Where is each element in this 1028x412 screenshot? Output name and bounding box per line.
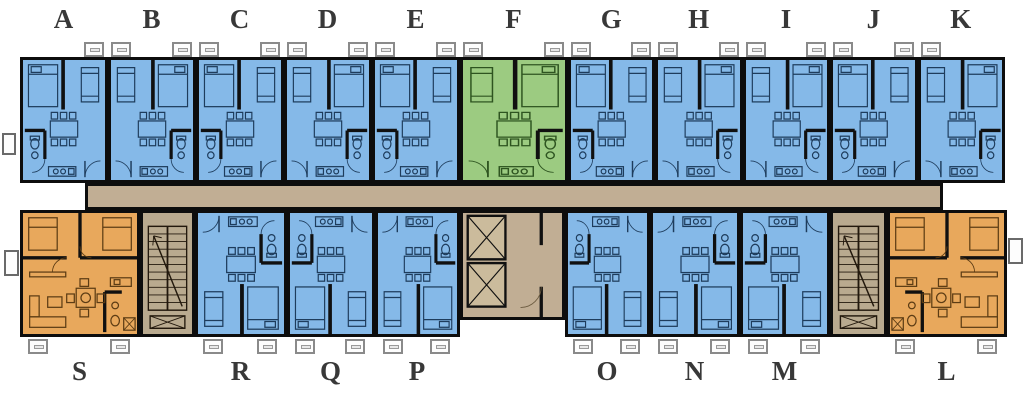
unit-label-N: N	[650, 356, 740, 386]
ac-ledge	[257, 339, 277, 354]
ac-ledge	[199, 42, 219, 57]
unit-label-C: C	[196, 4, 284, 34]
ac-ledge	[833, 42, 853, 57]
unit-label-J: J	[830, 4, 917, 34]
unit-label-O: O	[565, 356, 650, 386]
unit-furniture-wrap	[290, 213, 372, 334]
stairs-icon	[833, 213, 884, 334]
side-ledge	[4, 250, 19, 276]
unit-N	[650, 210, 740, 337]
studio-furniture	[568, 213, 647, 334]
unit-S	[20, 210, 140, 337]
unit-furniture-wrap	[571, 60, 652, 180]
elevator-wrap	[463, 213, 562, 317]
ac-ledge	[921, 42, 941, 57]
stairs-wrap	[833, 213, 884, 334]
ac-ledge	[748, 339, 768, 354]
ac-ledge	[977, 339, 997, 354]
studio-furniture	[571, 60, 652, 180]
ac-ledge	[746, 42, 766, 57]
unit-I	[743, 57, 830, 183]
unit-label-M: M	[740, 356, 830, 386]
unit-label-P: P	[375, 356, 460, 386]
studio-furniture	[653, 213, 737, 334]
central-corridor	[85, 183, 943, 210]
ac-ledge	[719, 42, 739, 57]
corner-unit-furniture	[23, 213, 137, 334]
unit-H	[655, 57, 742, 183]
unit-label-D: D	[284, 4, 372, 34]
unit-G	[568, 57, 655, 183]
unit-M	[740, 210, 830, 337]
studio-furniture	[375, 60, 457, 180]
ac-ledge	[287, 42, 307, 57]
ac-ledge	[463, 42, 483, 57]
stairwell-left	[140, 210, 195, 337]
ac-ledge	[436, 42, 456, 57]
unit-A	[20, 57, 108, 183]
unit-B	[108, 57, 196, 183]
unit-Q	[287, 210, 375, 337]
ac-ledge	[573, 339, 593, 354]
unit-furniture-wrap	[890, 213, 1004, 334]
ac-ledge	[620, 339, 640, 354]
studio-furniture	[921, 60, 1002, 180]
studio-furniture	[658, 60, 739, 180]
unit-label-H: H	[655, 4, 742, 34]
unit-furniture-wrap	[287, 60, 369, 180]
unit-F	[460, 57, 568, 183]
ac-ledge	[375, 42, 395, 57]
studio-furniture	[23, 60, 105, 180]
studio-furniture	[199, 60, 281, 180]
side-ledge	[1008, 238, 1023, 264]
unit-label-A: A	[20, 4, 108, 34]
unit-P	[375, 210, 460, 337]
studio-furniture	[463, 60, 565, 180]
ac-ledge	[894, 42, 914, 57]
unit-R	[195, 210, 287, 337]
unit-label-L: L	[887, 356, 1007, 386]
ac-ledge	[295, 339, 315, 354]
ac-ledge	[895, 339, 915, 354]
unit-C	[196, 57, 284, 183]
unit-O	[565, 210, 650, 337]
unit-furniture-wrap	[23, 60, 105, 180]
studio-furniture	[743, 213, 827, 334]
unit-label-B: B	[108, 4, 196, 34]
unit-L	[887, 210, 1007, 337]
studio-furniture	[111, 60, 193, 180]
unit-furniture-wrap	[746, 60, 827, 180]
ac-ledge	[345, 339, 365, 354]
unit-furniture-wrap	[375, 60, 457, 180]
unit-K	[918, 57, 1005, 183]
unit-furniture-wrap	[921, 60, 1002, 180]
unit-furniture-wrap	[199, 60, 281, 180]
unit-label-K: K	[918, 4, 1005, 34]
studio-furniture	[746, 60, 827, 180]
ac-ledge	[544, 42, 564, 57]
elevator-core	[460, 210, 565, 320]
unit-furniture-wrap	[658, 60, 739, 180]
studio-furniture	[198, 213, 284, 334]
unit-furniture-wrap	[743, 213, 827, 334]
unit-E	[372, 57, 460, 183]
unit-label-G: G	[568, 4, 655, 34]
unit-label-I: I	[743, 4, 830, 34]
unit-label-R: R	[195, 356, 287, 386]
ac-ledge	[658, 339, 678, 354]
ac-ledge	[203, 339, 223, 354]
unit-furniture-wrap	[198, 213, 284, 334]
ac-ledge	[631, 42, 651, 57]
ac-ledge	[430, 339, 450, 354]
ac-ledge	[348, 42, 368, 57]
ac-ledge	[571, 42, 591, 57]
unit-label-E: E	[372, 4, 460, 34]
studio-furniture	[290, 213, 372, 334]
unit-J	[830, 57, 917, 183]
unit-furniture-wrap	[111, 60, 193, 180]
unit-furniture-wrap	[833, 60, 914, 180]
side-ledge	[2, 133, 16, 155]
unit-furniture-wrap	[568, 213, 647, 334]
ac-ledge	[260, 42, 280, 57]
ac-ledge	[110, 339, 130, 354]
unit-furniture-wrap	[378, 213, 457, 334]
stairwell-right	[830, 210, 887, 337]
unit-label-Q: Q	[287, 356, 375, 386]
studio-furniture	[833, 60, 914, 180]
ac-ledge	[806, 42, 826, 57]
unit-label-F: F	[460, 4, 568, 34]
ac-ledge	[28, 339, 48, 354]
ac-ledge	[111, 42, 131, 57]
ac-ledge	[800, 339, 820, 354]
studio-furniture	[378, 213, 457, 334]
ac-ledge	[84, 42, 104, 57]
ac-ledge	[658, 42, 678, 57]
studio-furniture	[287, 60, 369, 180]
unit-label-S: S	[20, 356, 140, 386]
ac-ledge	[710, 339, 730, 354]
ac-ledge	[383, 339, 403, 354]
unit-furniture-wrap	[23, 213, 137, 334]
unit-furniture-wrap	[463, 60, 565, 180]
stairs-icon	[143, 213, 192, 334]
unit-furniture-wrap	[653, 213, 737, 334]
elevator-core-icon	[463, 213, 562, 317]
floor-plan: A B C D E F G H I J K S R Q	[0, 0, 1028, 412]
unit-D	[284, 57, 372, 183]
ac-ledge	[172, 42, 192, 57]
stairs-wrap	[143, 213, 192, 334]
corner-unit-furniture	[890, 213, 1004, 334]
